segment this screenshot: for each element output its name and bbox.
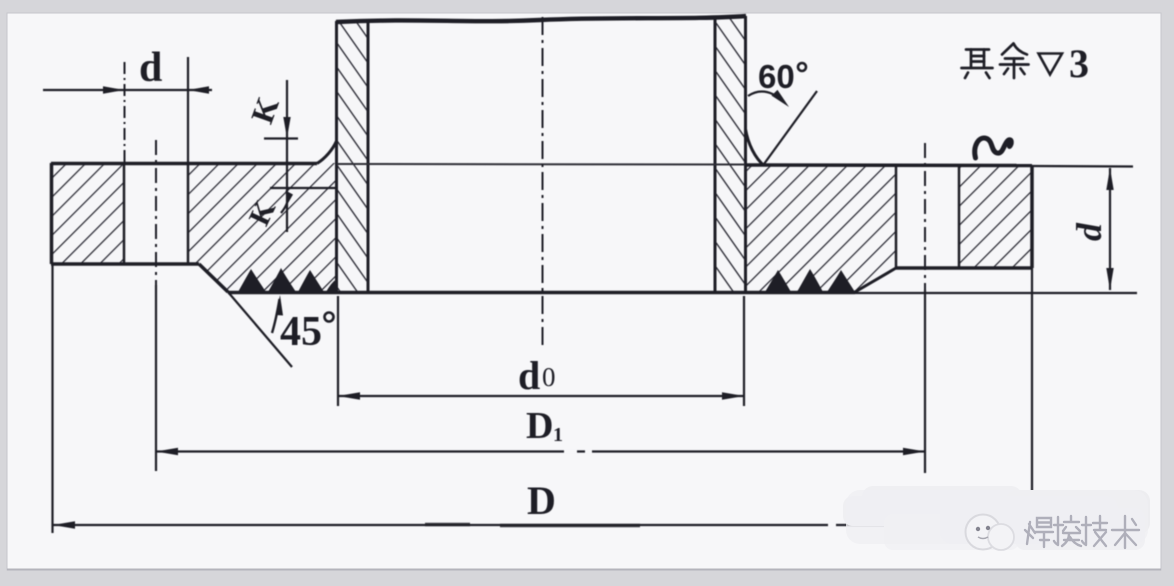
svg-text:0: 0	[542, 362, 556, 392]
svg-text:45: 45	[280, 309, 322, 355]
svg-text:60: 60	[758, 58, 795, 95]
svg-text:D: D	[526, 405, 553, 447]
svg-text:d: d	[139, 45, 162, 91]
svg-text:D: D	[527, 478, 556, 523]
svg-text:3: 3	[1069, 41, 1089, 86]
svg-text:d: d	[518, 353, 540, 398]
svg-text:1: 1	[553, 424, 563, 446]
svg-text:d: d	[1069, 222, 1109, 241]
